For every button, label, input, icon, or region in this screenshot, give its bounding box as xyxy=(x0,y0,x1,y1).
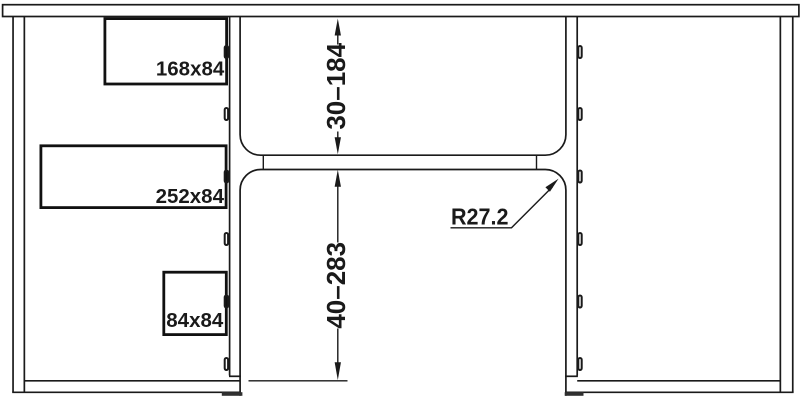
svg-text:168x84: 168x84 xyxy=(156,58,225,81)
svg-text:40–283: 40–283 xyxy=(321,242,351,329)
svg-text:252x84: 252x84 xyxy=(156,185,225,208)
svg-text:84x84: 84x84 xyxy=(166,309,224,332)
svg-text:30–184: 30–184 xyxy=(321,42,351,129)
svg-text:R27.2: R27.2 xyxy=(451,204,509,230)
